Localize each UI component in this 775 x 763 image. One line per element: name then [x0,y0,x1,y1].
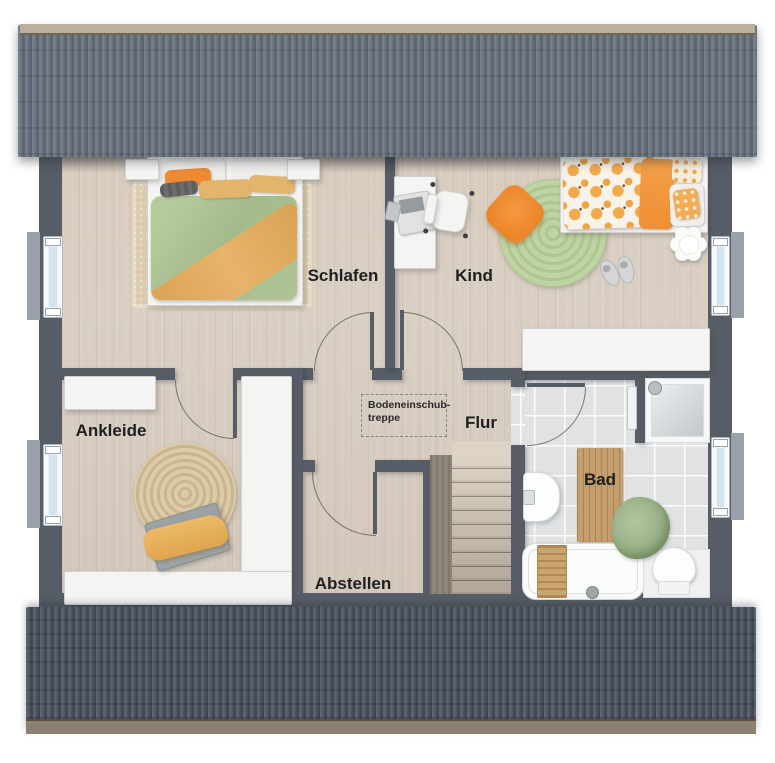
tub-faucet-icon [586,586,599,599]
caster [463,233,469,239]
window-cap [713,238,728,246]
window-cap [45,308,61,316]
roof-upper [18,25,757,157]
window-cap [45,446,61,454]
nightstand-left [125,159,159,180]
window-glass [716,246,725,306]
caster [430,182,436,188]
duvet-green [151,196,297,300]
nightstand-right [287,159,320,180]
kids-pillow-orange [672,187,701,220]
window-sill [731,433,744,520]
sink [523,472,560,522]
window-sill [27,232,40,320]
room-label-ankleide: Ankleide [76,421,147,441]
floor-plan: Schlafen Kind Ankleide Abstellen Flur Ba… [0,0,775,763]
door-leaf-abstellen [373,472,377,534]
window-ankleide [43,444,63,526]
window-cap [713,306,728,314]
slipper-strap [601,264,611,274]
window-glass [48,454,58,516]
attic-hatch-annotation: Bodeneinschub- treppe [361,394,447,437]
toilet-tank [658,581,690,595]
window-glass [716,447,725,508]
door-leaf-ankleide [233,380,237,438]
double-bed [147,156,303,306]
window-cap [45,516,61,524]
door-leaf-kind [400,310,404,370]
throw-blanket-orange [151,201,297,300]
caster [469,190,475,196]
ankleide-wardrobe-right [241,376,292,576]
staircase [452,455,511,594]
exterior-wall-right [708,157,732,607]
room-label-bad: Bad [584,470,616,490]
shower [645,378,710,443]
pillow-tan-left [199,179,252,199]
attic-hatch-line1: Bodeneinschub- [368,399,446,412]
slipper-strap [619,261,628,270]
attic-hatch-line2: treppe [368,412,446,425]
towel-rail [627,386,637,430]
kids-pillow-dotted [671,157,702,184]
wall-abstellen-top-left [303,460,315,472]
door-leaf-bad [527,383,585,387]
roof-ridge [20,24,755,35]
window-cap [45,238,61,246]
window-glass [48,246,58,308]
caster [423,228,429,234]
bathroom-door-threshold [511,387,525,445]
exterior-wall-left [39,157,62,607]
ankleide-dresser-top [64,376,156,410]
tub-caddy-wood [537,545,567,598]
window-schlafen [43,236,63,318]
window-cap [713,508,728,516]
flower-side-table [669,225,707,263]
room-label-flur: Flur [465,413,497,433]
roof-eave-strip [26,719,756,734]
stair-stringer [430,455,452,594]
flower-table-top [679,235,699,255]
window-kind [711,236,730,316]
room-label-kind: Kind [455,266,493,286]
kids-sideboard [522,328,710,371]
desk-chair [420,179,477,242]
faucet-icon [523,490,535,505]
laptop-screen [399,196,425,214]
window-sill [27,440,40,528]
window-cap [713,439,728,447]
wall-corridor-center [372,368,402,380]
kids-bed [560,155,708,233]
door-leaf-schlafen [370,312,374,370]
room-label-abstellen: Abstellen [315,574,392,594]
window-sill [731,232,744,318]
shower-head-icon [648,381,662,395]
roof-lower [26,607,756,732]
window-bad [711,437,730,518]
room-label-schlafen: Schlafen [308,266,379,286]
